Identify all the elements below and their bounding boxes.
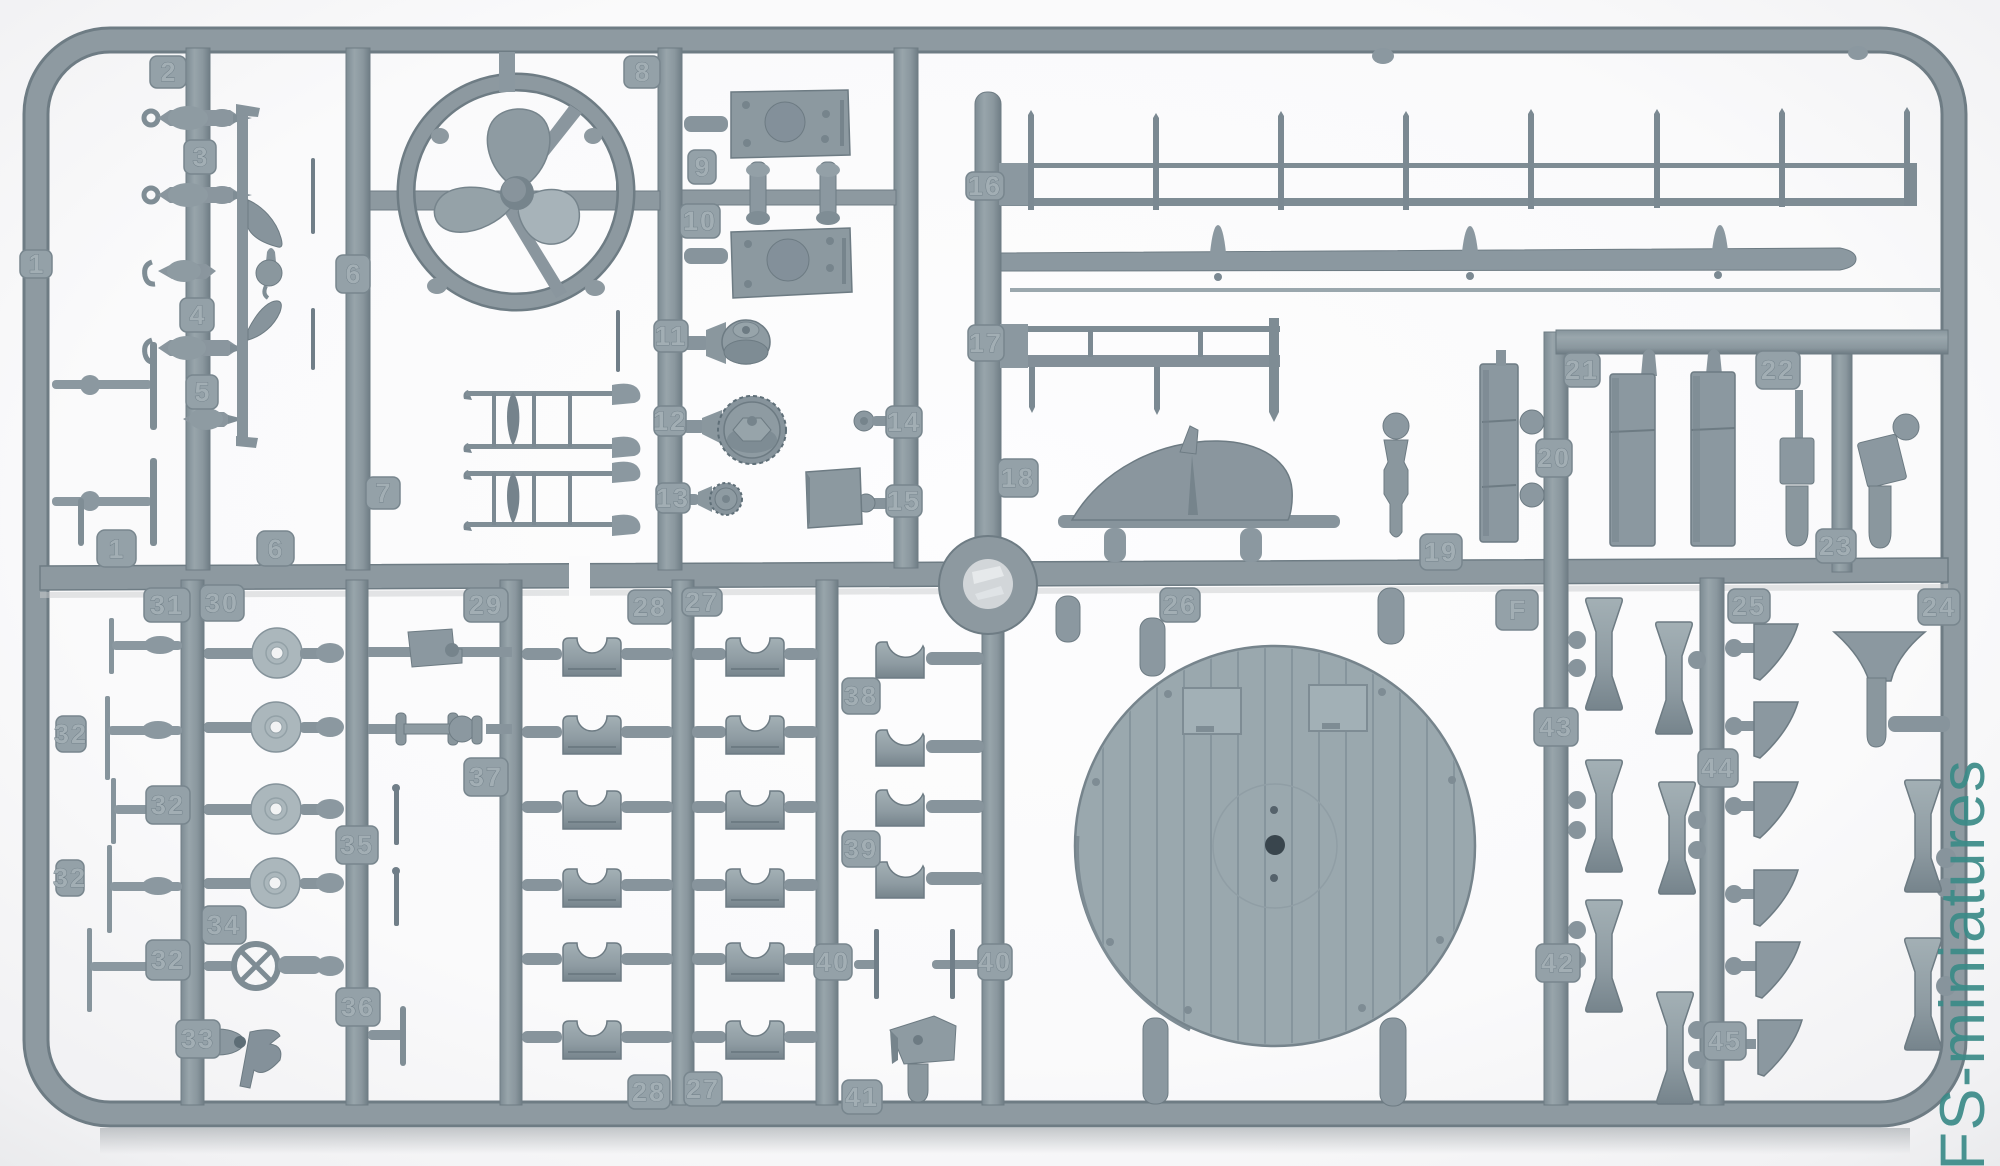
svg-text:33: 33 <box>181 1024 215 1054</box>
svg-text:1: 1 <box>28 249 43 279</box>
svg-text:2: 2 <box>160 57 175 87</box>
svg-text:18: 18 <box>1001 463 1035 493</box>
svg-text:31: 31 <box>150 590 184 620</box>
svg-text:42: 42 <box>1541 948 1575 978</box>
svg-text:27: 27 <box>685 587 719 617</box>
svg-text:44: 44 <box>1701 753 1735 783</box>
svg-text:21: 21 <box>1565 355 1599 385</box>
svg-text:6: 6 <box>345 259 360 289</box>
svg-text:20: 20 <box>1537 443 1571 473</box>
svg-text:3: 3 <box>192 142 207 172</box>
svg-text:27: 27 <box>686 1074 720 1104</box>
svg-text:36: 36 <box>341 992 375 1022</box>
svg-text:34: 34 <box>207 910 241 940</box>
svg-text:22: 22 <box>1761 355 1795 385</box>
svg-text:23: 23 <box>1819 531 1853 561</box>
svg-text:28: 28 <box>632 1077 666 1107</box>
svg-text:7: 7 <box>375 478 390 508</box>
svg-text:17: 17 <box>969 328 1003 358</box>
svg-text:15: 15 <box>887 486 921 516</box>
svg-text:45: 45 <box>1708 1026 1742 1056</box>
svg-text:6: 6 <box>267 534 282 564</box>
svg-text:F: F <box>1509 595 1526 625</box>
svg-text:5: 5 <box>194 377 209 407</box>
svg-text:40: 40 <box>978 947 1012 977</box>
svg-text:10: 10 <box>683 206 717 236</box>
svg-text:28: 28 <box>633 592 667 622</box>
svg-text:39: 39 <box>844 834 878 864</box>
svg-text:19: 19 <box>1424 537 1458 567</box>
svg-text:37: 37 <box>469 762 503 792</box>
svg-text:12: 12 <box>653 406 687 436</box>
svg-text:41: 41 <box>845 1082 879 1112</box>
svg-text:13: 13 <box>656 483 690 513</box>
svg-text:32: 32 <box>54 719 88 749</box>
svg-text:32: 32 <box>151 790 185 820</box>
svg-text:1: 1 <box>108 534 123 564</box>
svg-text:43: 43 <box>1539 712 1573 742</box>
svg-text:38: 38 <box>844 681 878 711</box>
svg-text:11: 11 <box>655 321 688 351</box>
svg-text:9: 9 <box>694 152 709 182</box>
svg-text:24: 24 <box>1922 592 1956 622</box>
svg-text:32: 32 <box>53 863 87 893</box>
svg-text:26: 26 <box>1163 590 1197 620</box>
svg-text:29: 29 <box>469 590 503 620</box>
svg-text:14: 14 <box>887 407 921 437</box>
svg-text:30: 30 <box>205 588 239 618</box>
svg-text:KFS-miniatures: KFS-miniatures <box>1928 759 1998 1166</box>
svg-text:35: 35 <box>340 830 374 860</box>
svg-text:16: 16 <box>968 171 1002 201</box>
svg-text:4: 4 <box>189 300 204 330</box>
svg-text:40: 40 <box>816 947 850 977</box>
svg-text:32: 32 <box>151 945 185 975</box>
svg-text:8: 8 <box>634 57 649 87</box>
svg-text:25: 25 <box>1732 591 1766 621</box>
